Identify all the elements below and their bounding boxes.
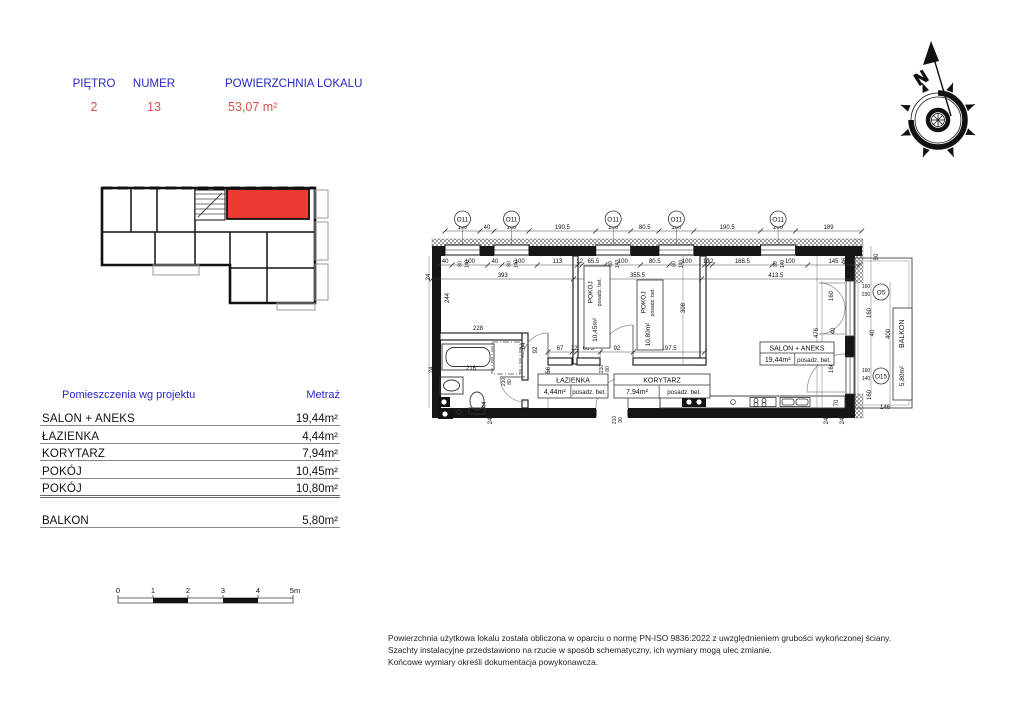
scale-bar: 0 1 2 3 4 5m — [108, 585, 318, 615]
dim-annotation: 80 — [507, 379, 513, 385]
svg-text:1: 1 — [151, 586, 155, 595]
compass-rose: N — [885, 28, 1000, 168]
kitchen-sink — [780, 398, 810, 407]
window-bubble-label: O15 — [875, 373, 888, 380]
room-name: KORYTARZ — [42, 448, 105, 460]
room-floor: posadz. bet. — [797, 357, 831, 364]
window-sill-mark: 80 — [507, 261, 513, 267]
dim-value: 67 — [557, 346, 564, 352]
dim-annotation: 230 — [862, 292, 871, 298]
dim-value: 40 — [491, 259, 498, 265]
stove-burners — [750, 398, 776, 407]
room-floor: posadz. bet. — [597, 278, 603, 306]
room-area: 19,44m² — [296, 413, 338, 425]
dim-value: 168.5 — [735, 259, 751, 265]
bathroom-sink — [440, 377, 463, 394]
installation-shaft — [492, 342, 520, 374]
footer-notes: Powierzchnia użytkowa lokalu została obl… — [388, 632, 988, 668]
dim-annotation: 24 — [429, 366, 435, 373]
window-sill-mark: 80 — [773, 261, 779, 267]
room-area: 5,80m² — [302, 515, 338, 527]
window-bubble-label: O11 — [457, 216, 469, 223]
window-head-mark: 140 — [780, 260, 786, 269]
dim-value: 12 — [576, 259, 583, 265]
room-area: 7,94m² — [302, 448, 338, 460]
dim-annotation: 90 — [618, 417, 624, 423]
room-area: 10,45m² — [592, 317, 599, 342]
dim-value: 100 — [785, 259, 796, 265]
dim-annotation: 24 — [426, 273, 432, 280]
rooms-table: Pomieszczenia wg projektu Metraż SALON +… — [40, 389, 340, 528]
ceiling-lamp-symbol — [731, 400, 736, 405]
dim-annotation: 24 — [824, 417, 830, 424]
mini-floor-plan — [95, 180, 340, 315]
table-col2-header: Metraż — [306, 389, 340, 401]
dim-annotation: 160 — [862, 284, 871, 290]
room-area: 4,44m² — [544, 389, 566, 396]
dim-annotation: 90 — [874, 253, 880, 260]
dim-value: 393 — [498, 273, 509, 279]
room-name: SALON + ANEKS — [769, 346, 824, 353]
room-label: BALKON5,80m² — [893, 308, 912, 400]
room-name: KORYTARZ — [643, 378, 681, 385]
room-area: 5,80m² — [899, 365, 906, 386]
room-name: POKÓJ — [639, 291, 648, 313]
balkon-row: BALKON 5,80m² — [40, 511, 340, 528]
room-area: 4,44m² — [302, 431, 338, 443]
room-floor: posadz. bet. — [667, 389, 701, 396]
svg-text:2: 2 — [186, 586, 190, 595]
area-label: POWIERZCHNIA LOKALU — [212, 78, 372, 90]
room-label: KORYTARZ7,94m²posadz. bet. — [614, 374, 710, 398]
room-name: POKÓJ — [42, 466, 82, 478]
dim-annotation: 244 — [445, 292, 451, 303]
room-area: 19,44m² — [765, 357, 791, 364]
dim-value: 113 — [553, 259, 563, 265]
dim-annotation: 400 — [886, 328, 892, 339]
room-area: 10,80m² — [296, 483, 338, 495]
dim-value: 65.5 — [588, 259, 600, 265]
dim-annotation: 44 — [482, 401, 488, 408]
dim-annotation: 80 — [605, 366, 611, 372]
floor-field: PIĘTRO 2 — [58, 78, 130, 114]
room-name: BALKON — [42, 515, 89, 527]
dim-value: 189 — [824, 225, 835, 231]
room-name: SALON + ANEKS — [42, 413, 135, 425]
rooms-table-rows: SALON + ANEKS 19,44m² ŁAZIENKA 4,44m² KO… — [40, 409, 340, 498]
window-sill-mark: 80 — [458, 261, 464, 267]
room-name: ŁAZIENKA — [42, 431, 99, 443]
window-bubble-label: O11 — [506, 216, 518, 223]
dim-annotation: 228 — [473, 326, 484, 332]
dim-annotation: 40 — [870, 329, 876, 336]
floor-label: PIĘTRO — [58, 78, 130, 90]
dim-value: 40 — [484, 225, 491, 231]
room-label: SALON + ANEKS19,44m²posadz. bet. — [760, 342, 834, 365]
dim-annotation: 160 — [867, 389, 873, 400]
table-row: KORYTARZ 7,94m² — [40, 444, 340, 461]
dim-annotation: 160 — [862, 368, 871, 374]
dim-annotation: 216 — [466, 366, 477, 372]
room-name: ŁAZIENKA — [556, 378, 590, 385]
dim-value: 12 — [571, 346, 578, 352]
window-head-mark: 140 — [514, 260, 520, 269]
dim-value: 197.5 — [662, 346, 678, 352]
window-bubble-label: O11 — [607, 216, 619, 223]
dim-annotation: 24 — [488, 417, 494, 424]
svg-text:4: 4 — [256, 586, 260, 595]
dim-annotation: 140 — [862, 376, 871, 382]
dim-annotation: 160 — [829, 290, 835, 301]
north-label: N — [911, 67, 931, 90]
svg-text:0: 0 — [116, 586, 120, 595]
window-bubble-label: O11 — [772, 216, 784, 223]
number-label: NUMER — [122, 78, 186, 90]
number-value: 13 — [122, 100, 186, 114]
table-row: SALON + ANEKS 19,44m² — [40, 409, 340, 426]
table-row: ŁAZIENKA 4,44m² — [40, 426, 340, 443]
window-head-mark: 140 — [678, 260, 684, 269]
dim-value: 92 — [614, 346, 621, 352]
room-floor: posadz. bet. — [572, 389, 606, 396]
dim-value: 413.5 — [768, 273, 784, 279]
room-area: 10,45m² — [296, 466, 338, 478]
scale-labels: 0 1 2 3 4 5m — [116, 586, 300, 595]
dim-value: 40 — [442, 259, 449, 265]
footer-note-line: Szachty instalacyjne przedstawiono na rz… — [388, 644, 988, 656]
room-name: POKÓJ — [42, 483, 82, 495]
dim-value: 80.5 — [649, 259, 661, 265]
area-field: POWIERZCHNIA LOKALU 53,07 m² — [212, 78, 372, 114]
room-floor: posadz. bet. — [650, 288, 656, 316]
room-label: ŁAZIENKA4,44m²posadz. bet. — [538, 374, 608, 398]
room-name: POKÓJ — [586, 281, 595, 303]
svg-text:3: 3 — [221, 586, 225, 595]
highlighted-unit — [227, 189, 309, 219]
compass-dial — [911, 93, 965, 147]
window-bubble-label: O11 — [670, 216, 682, 223]
dim-annotation: 92 — [533, 346, 539, 353]
window-head-mark: 140 — [615, 260, 621, 269]
dim-annotation: 146 — [880, 405, 891, 411]
footer-note-line: Końcowe wymiary określi dokumentacja pow… — [388, 656, 988, 668]
room-area: 7,94m² — [626, 389, 648, 396]
dim-annotation: 24 — [840, 417, 846, 424]
number-field: NUMER 13 — [122, 78, 186, 114]
dim-annotation: 40 — [831, 327, 837, 334]
dim-value: 12 — [707, 259, 714, 265]
kitchen-appliances — [682, 397, 810, 407]
room-name: BALKON — [899, 320, 906, 348]
window-sill-mark: 80 — [671, 261, 677, 267]
dim-value: 145 — [828, 259, 839, 265]
dim-value: 190.5 — [720, 225, 736, 231]
dim-annotation: 46 — [842, 257, 848, 264]
dim-annotation: 308 — [681, 302, 687, 313]
room-label: POKÓJposadz. bet.10,45m² — [584, 266, 610, 348]
floor-plan-sheet: { "header": { "fields": [ {"label": "PIĘ… — [0, 0, 1024, 724]
svg-text:5m: 5m — [290, 586, 300, 595]
floor-value: 2 — [58, 100, 130, 114]
dim-value: 355.5 — [630, 273, 646, 279]
dim-annotation: 64 — [521, 342, 527, 349]
north-arrow-head — [923, 41, 939, 65]
window-bubble-label: O5 — [877, 289, 886, 296]
table-row: POKÓJ 10,80m² — [40, 479, 340, 498]
dim-value: 80.5 — [639, 225, 651, 231]
room-label: POKÓJposadz. bet.10,80m² — [637, 280, 663, 350]
footer-note-line: Powierzchnia użytkowa lokalu została obl… — [388, 632, 988, 644]
table-col1-header: Pomieszczenia wg projektu — [40, 389, 195, 401]
main-floor-plan: 10040100190.510080.5100190.5100189401004… — [415, 200, 930, 440]
dim-annotation: 160 — [867, 307, 873, 318]
dim-value: 190.5 — [555, 225, 571, 231]
area-value: 53,07 m² — [212, 100, 372, 114]
room-area: 10,80m² — [645, 322, 652, 347]
rooms-table-header: Pomieszczenia wg projektu Metraż — [40, 389, 340, 401]
table-row: POKÓJ 10,45m² — [40, 461, 340, 478]
window-head-mark: 140 — [465, 260, 471, 269]
dim-annotation: 70 — [834, 399, 840, 406]
dim-annotation: 476 — [814, 327, 820, 338]
